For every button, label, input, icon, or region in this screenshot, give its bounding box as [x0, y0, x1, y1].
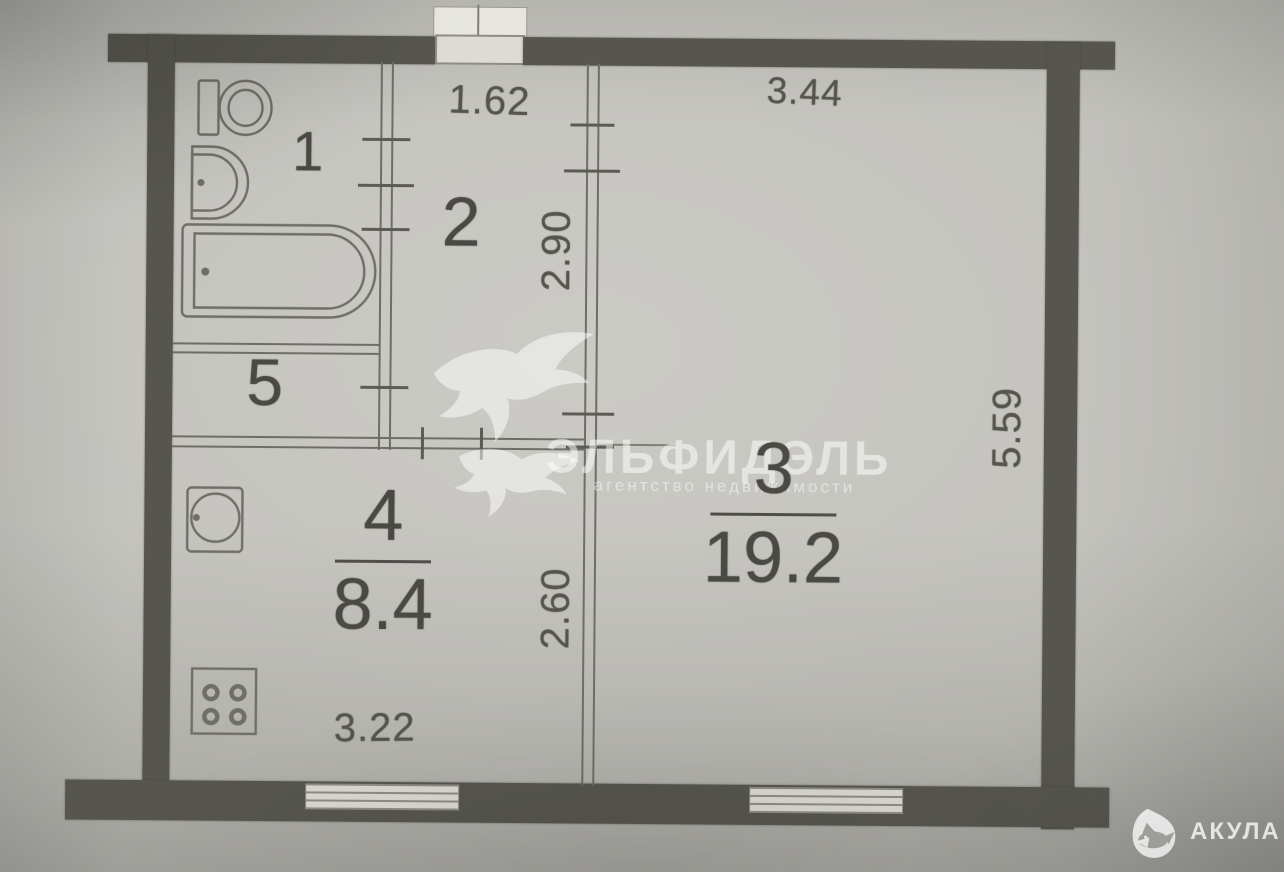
floor-plan: 1 2 5 4 8.4 1.62 3.44 2.90 5.59 2.60 3.2…: [0, 0, 1284, 872]
floor-plan-photo: 1 2 5 4 8.4 1.62 3.44 2.90 5.59 2.60 3.2…: [0, 0, 1284, 872]
shark-drop-icon: [1128, 806, 1180, 858]
room-3-area-label: 3 19.2: [699, 432, 848, 594]
fraction-bar: [710, 513, 836, 517]
swallow-icon: [433, 331, 594, 443]
room-3-area: 19.2: [699, 521, 848, 594]
room-3-number: 3: [699, 432, 848, 505]
akula-logo-text: АКУЛА: [1190, 818, 1281, 846]
akula-logo: АКУЛА: [1128, 806, 1281, 858]
